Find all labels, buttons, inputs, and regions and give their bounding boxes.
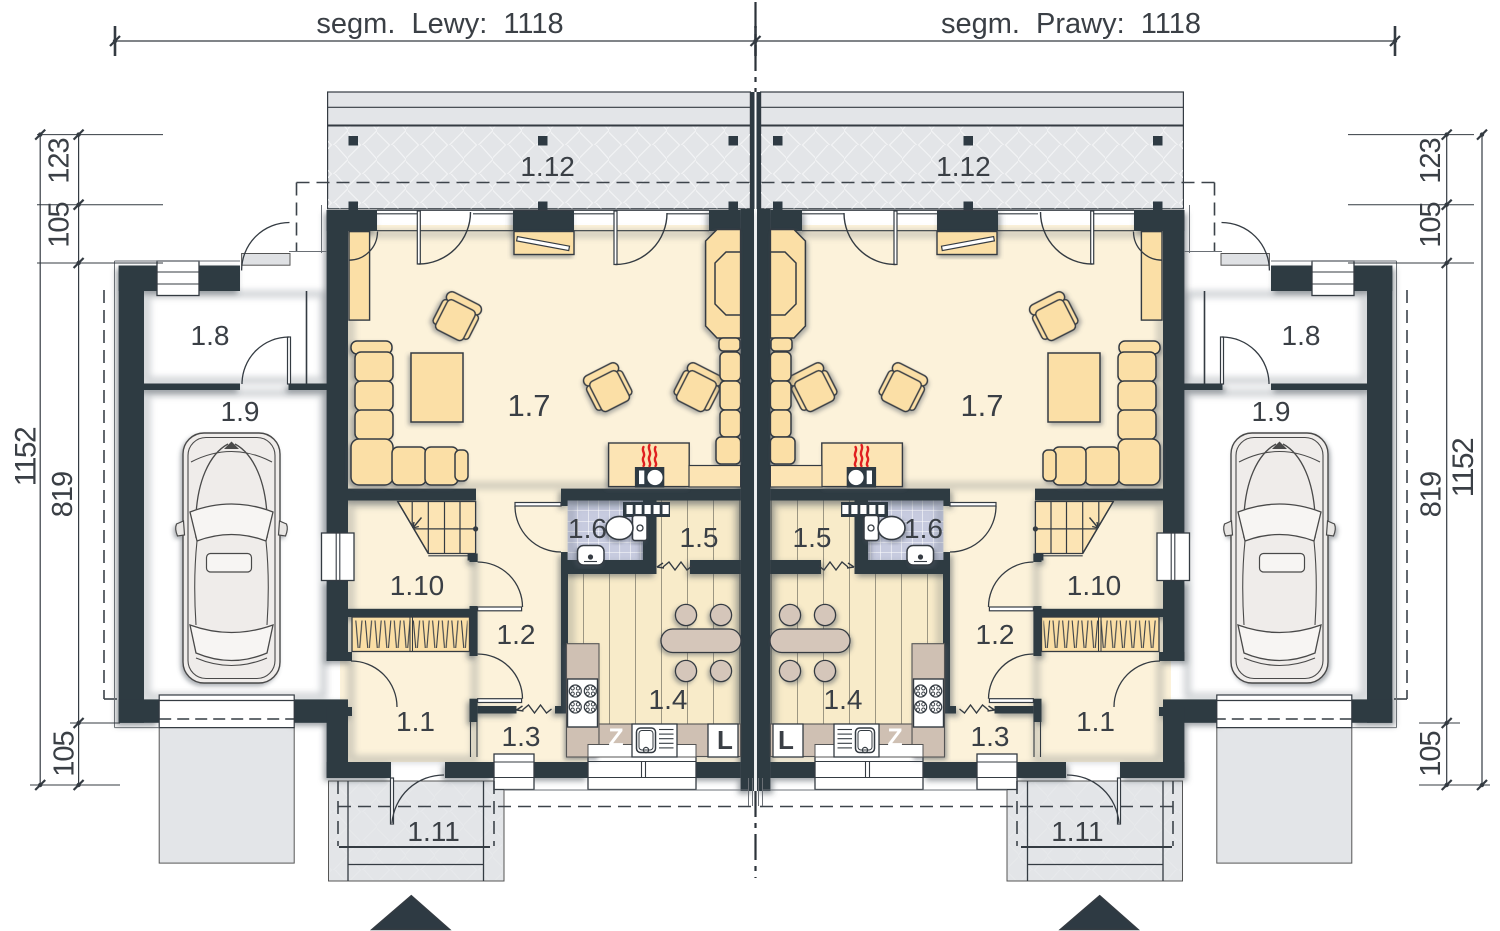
svg-text:1.11: 1.11 xyxy=(1051,816,1103,847)
svg-text:1.7: 1.7 xyxy=(960,388,1003,423)
svg-text:1.3: 1.3 xyxy=(502,721,541,752)
svg-text:1.9: 1.9 xyxy=(221,396,260,427)
svg-text:1.4: 1.4 xyxy=(824,684,863,715)
svg-text:1.9: 1.9 xyxy=(1252,396,1291,427)
svg-text:1.2: 1.2 xyxy=(976,619,1015,650)
svg-text:1.8: 1.8 xyxy=(1282,320,1321,351)
svg-text:1.1: 1.1 xyxy=(1076,706,1115,737)
svg-text:segm. Lewy: 1118: segm. Lewy: 1118 xyxy=(316,8,563,40)
svg-text:105: 105 xyxy=(1415,731,1447,776)
svg-text:105: 105 xyxy=(44,202,76,247)
svg-text:819: 819 xyxy=(1416,472,1448,517)
svg-text:819: 819 xyxy=(47,472,79,517)
svg-text:1.6: 1.6 xyxy=(904,513,943,544)
svg-text:1.11: 1.11 xyxy=(407,816,459,847)
svg-text:1.8: 1.8 xyxy=(191,320,230,351)
svg-text:105: 105 xyxy=(1415,202,1447,247)
svg-text:1.6: 1.6 xyxy=(568,513,607,544)
svg-text:1.12: 1.12 xyxy=(520,151,575,182)
svg-text:1.5: 1.5 xyxy=(680,522,719,553)
svg-text:123: 123 xyxy=(1415,138,1447,183)
svg-text:1.4: 1.4 xyxy=(649,684,688,715)
svg-text:1.3: 1.3 xyxy=(971,721,1010,752)
svg-text:1.5: 1.5 xyxy=(793,522,832,553)
svg-text:105: 105 xyxy=(49,731,81,776)
svg-text:L: L xyxy=(717,725,733,755)
svg-text:1.2: 1.2 xyxy=(497,619,536,650)
svg-text:Z: Z xyxy=(887,724,902,752)
svg-text:1.1: 1.1 xyxy=(396,706,435,737)
svg-text:1152: 1152 xyxy=(1447,438,1480,497)
svg-text:Z: Z xyxy=(608,724,623,752)
svg-text:L: L xyxy=(778,725,794,755)
svg-text:1.10: 1.10 xyxy=(1067,570,1122,601)
svg-text:1152: 1152 xyxy=(10,427,43,486)
svg-text:1.7: 1.7 xyxy=(507,388,550,423)
svg-text:1.10: 1.10 xyxy=(390,570,445,601)
svg-text:1.12: 1.12 xyxy=(936,151,991,182)
svg-text:segm. Prawy: 1118: segm. Prawy: 1118 xyxy=(941,8,1201,40)
svg-text:123: 123 xyxy=(44,138,76,183)
